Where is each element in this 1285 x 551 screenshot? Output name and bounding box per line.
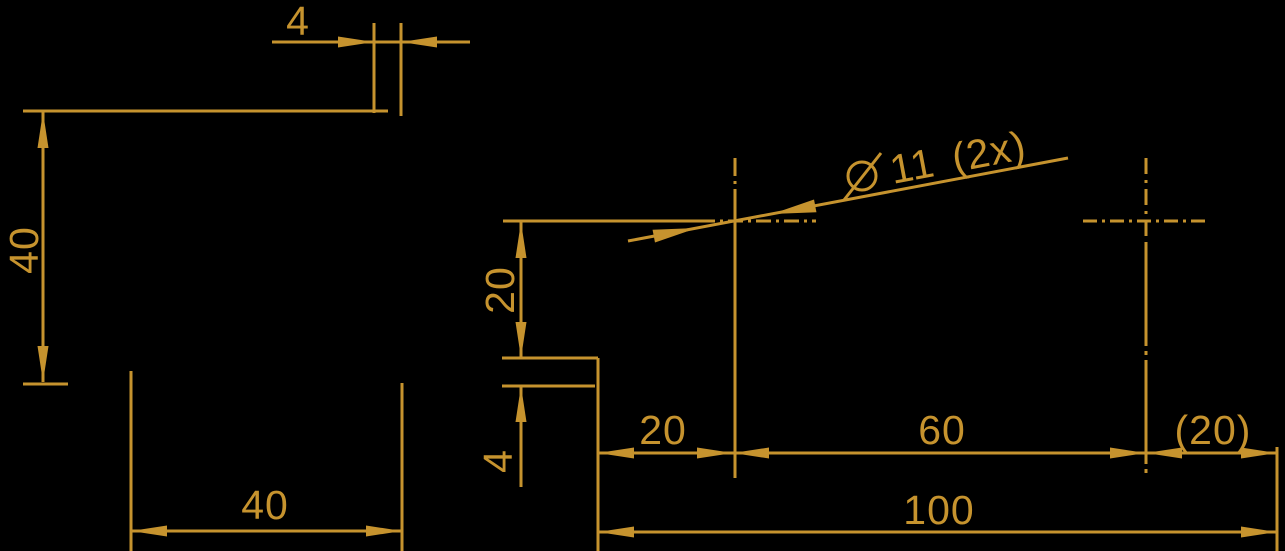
- arrow-dim40-up: [38, 112, 49, 148]
- dim-height-40-label: 40: [1, 226, 47, 274]
- dim-chain-20-label: 20: [639, 407, 687, 453]
- dim-offset-20-label: 20: [477, 266, 523, 314]
- dim-overall-100-label: 100: [903, 487, 974, 533]
- arrow-dim40b-left: [131, 526, 167, 537]
- technical-drawing: 440402042060(20)10011 (2x): [0, 0, 1285, 551]
- arrow-dim4-left: [401, 37, 437, 48]
- arrow-dim100-left: [598, 527, 634, 538]
- dim-step-4-label: 4: [475, 449, 521, 473]
- arrow-leader-upper: [772, 199, 816, 214]
- arrow-dim20v-down: [516, 322, 527, 358]
- arrow-dim40b-right: [366, 526, 402, 537]
- dim-chain-20-ref-label: (20): [1175, 407, 1252, 453]
- arrow-chain60-right: [1110, 448, 1146, 459]
- arrow-dim20v-up: [516, 222, 527, 258]
- arrow-chain20-left: [598, 448, 634, 459]
- hole-callout-label: 11 (2x): [886, 122, 1030, 193]
- arrow-dim4-right: [338, 37, 374, 48]
- arrow-chain60-left: [733, 448, 769, 459]
- arrow-dim100-right: [1241, 527, 1277, 538]
- arrow-chain20-right: [697, 448, 733, 459]
- dim-chain-60-label: 60: [918, 407, 966, 453]
- dim-width-40-label: 40: [241, 482, 289, 528]
- arrow-dim4v-up: [516, 386, 527, 422]
- dim-width-4-label: 4: [286, 0, 310, 44]
- arrow-dim40-down: [38, 346, 49, 382]
- arrow-leader-lower: [653, 228, 697, 243]
- drawing-canvas[interactable]: 440402042060(20)10011 (2x): [0, 0, 1285, 551]
